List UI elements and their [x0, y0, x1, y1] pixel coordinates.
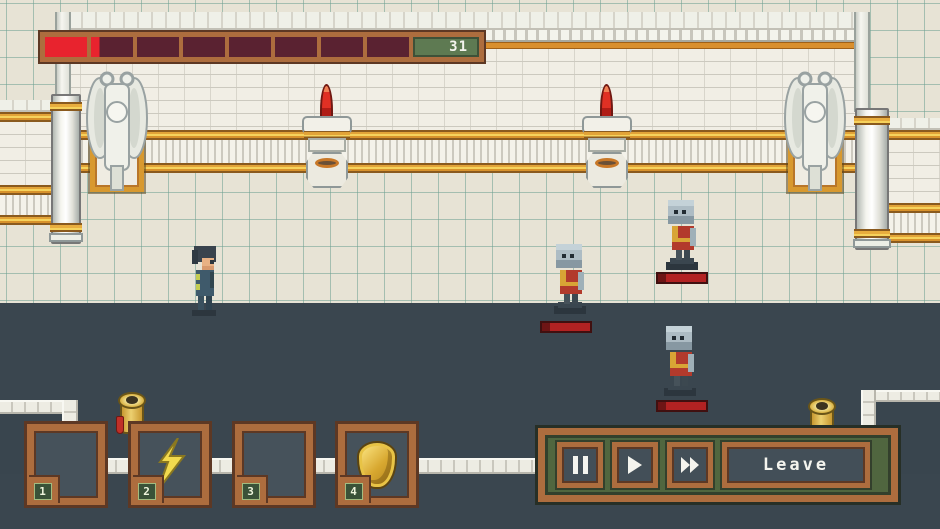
wall-right: [888, 118, 940, 241]
play-icon: [627, 456, 643, 474]
sconce-body: [588, 138, 626, 152]
column-right: [855, 108, 889, 250]
column-foot: [853, 239, 891, 248]
floor-edge-right: [876, 390, 940, 402]
wall-bricks: [888, 140, 940, 203]
playback-panel: Leave: [538, 428, 898, 502]
player-character: [186, 240, 222, 322]
wall-gold-trim: [888, 233, 940, 243]
hotkey-label: 1: [34, 483, 52, 500]
pause-icon: [573, 456, 588, 474]
wall-left: [0, 100, 55, 223]
floor-edge-left: [0, 400, 64, 414]
health-bar: 31: [40, 32, 484, 62]
brazier: [306, 152, 348, 188]
counter-badge: 31: [413, 37, 479, 57]
hotkey-badge: 4: [338, 477, 369, 505]
column-base-ring: [854, 229, 890, 238]
health-segment: [367, 37, 409, 57]
hotkey-label: 4: [345, 483, 363, 500]
wall-gold-trim: [888, 130, 940, 140]
censer-hole: [126, 396, 138, 404]
brazier-ring: [315, 158, 339, 168]
wall-corner-edge-right: [854, 12, 870, 112]
enemy-health-bar: [540, 321, 592, 333]
health-segment: [183, 37, 225, 57]
angel-statue-right-icon: [783, 70, 847, 196]
ability-slot-3[interactable]: 3: [235, 424, 313, 505]
health-segment: [229, 37, 271, 57]
column-base-ring: [50, 223, 82, 232]
enemy-health-bar: [656, 400, 708, 412]
fast-forward-icon: [681, 457, 699, 473]
wall-ledge: [55, 12, 868, 30]
ability-slot-1[interactable]: 1: [27, 424, 105, 505]
sconce-body: [308, 138, 346, 152]
enemy-health-bar: [656, 272, 708, 284]
pause-button[interactable]: [557, 442, 603, 488]
censer-red-wax: [116, 416, 124, 434]
health-segment: [137, 37, 179, 57]
wall-ledge: [888, 118, 940, 130]
candle-sconce-right: [582, 84, 632, 190]
health-segment: [91, 37, 133, 57]
wall-ledge: [0, 100, 55, 112]
wall-gold-trim: [888, 203, 940, 213]
enemy-zombie[interactable]: [548, 240, 592, 320]
brazier-ring: [595, 158, 619, 168]
ability-slot-4[interactable]: 4: [338, 424, 416, 505]
health-segment: [45, 37, 87, 57]
wall-slat-panel: [0, 195, 55, 215]
wall-slat-panel: [55, 140, 868, 163]
sconce-gold-band: [304, 131, 350, 138]
hotkey-label: 3: [242, 483, 260, 500]
ability-slot-2[interactable]: 2: [131, 424, 209, 505]
wall-gold-trim-upper: [55, 130, 868, 140]
wall-gold-trim: [0, 185, 55, 195]
play-button[interactable]: [612, 442, 658, 488]
hotkey-label: 2: [138, 483, 156, 500]
angel-statue-left-icon: [85, 70, 149, 196]
enemy-zombie[interactable]: [660, 196, 704, 276]
column-capital: [854, 116, 890, 125]
health-segment: [275, 37, 317, 57]
wall-gold-trim: [0, 112, 55, 122]
column-left: [51, 94, 81, 244]
health-segment: [321, 37, 363, 57]
wall-slat-panel: [888, 213, 940, 233]
wall-bricks: [0, 122, 55, 185]
censer-hole: [816, 402, 828, 410]
sconce-gold-band: [584, 131, 630, 138]
hotkey-badge: 2: [131, 477, 162, 505]
wall-gold-trim: [0, 215, 55, 225]
leave-button[interactable]: Leave: [722, 442, 870, 488]
candle-sconce-left: [302, 84, 352, 190]
column-foot: [49, 233, 83, 242]
hotkey-badge: 3: [235, 477, 266, 505]
brazier: [586, 152, 628, 188]
fast-forward-button[interactable]: [667, 442, 713, 488]
game-screen: 31 1 2 3 4 Leave: [0, 0, 940, 529]
column-capital: [50, 102, 82, 111]
hotkey-badge: 1: [27, 477, 58, 505]
wall-gold-trim-lower: [55, 163, 868, 173]
enemy-zombie[interactable]: [658, 322, 702, 402]
